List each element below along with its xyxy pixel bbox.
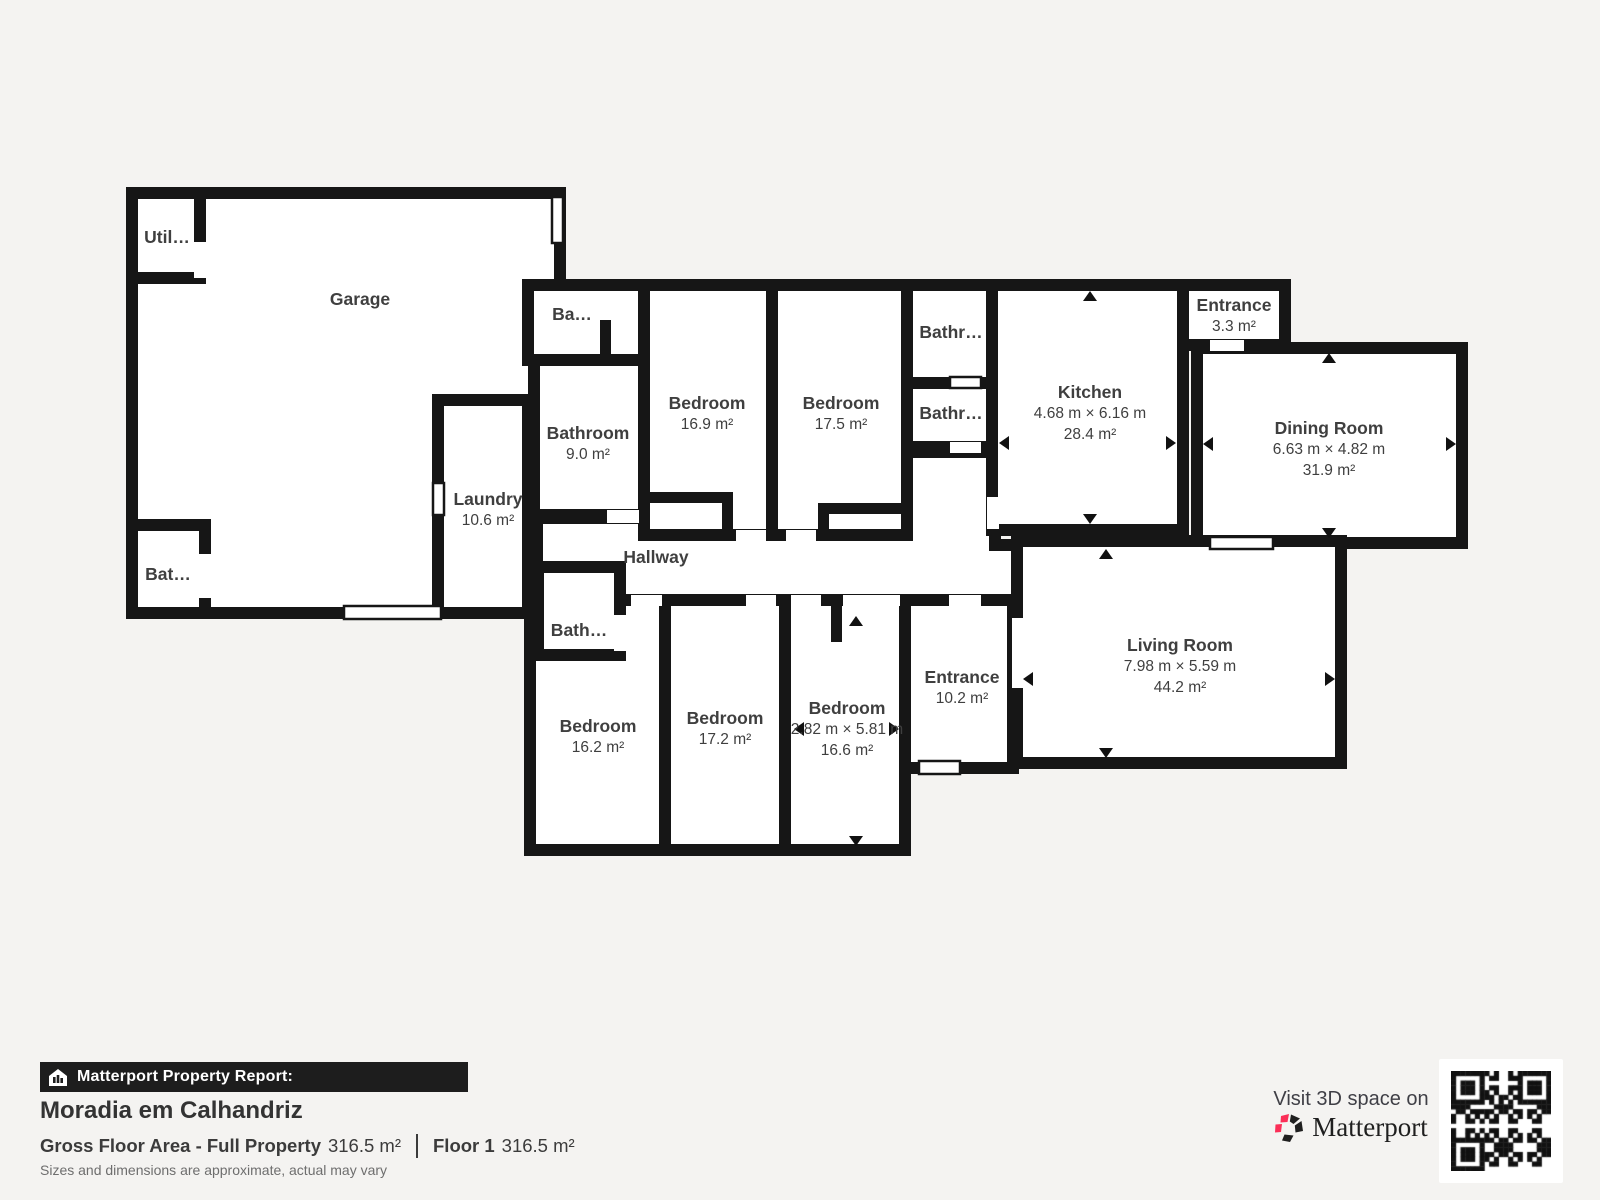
property-title: Moradia em Calhandriz	[40, 1097, 303, 1125]
matterport-wordmark: Matterport	[1312, 1112, 1427, 1143]
qr-code	[1451, 1071, 1551, 1171]
report-header-bar: Matterport Property Report:	[40, 1062, 468, 1092]
room-label-bathr2: Bathr…	[919, 402, 982, 424]
floor1-value: 316.5 m²	[502, 1135, 575, 1157]
matterport-floorplan-report: { "page": { "background": "#f4f3f1", "wa…	[0, 0, 1600, 1200]
room-label-hallway: Hallway	[623, 546, 688, 568]
room-label-utility: Util…	[144, 226, 190, 248]
floor-plan	[0, 0, 1600, 1200]
room-label-bedroom162: Bedroom16.2 m²	[560, 715, 637, 758]
report-bar-label: Matterport Property Report:	[77, 1068, 293, 1086]
gross-floor-area-label: Gross Floor Area - Full Property	[40, 1135, 321, 1157]
stats-divider	[416, 1134, 418, 1158]
room-label-kitchen: Kitchen4.68 m × 6.16 m28.4 m²	[1034, 381, 1146, 445]
room-label-entrance33: Entrance3.3 m²	[1197, 294, 1272, 337]
room-label-laundry: Laundry10.6 m²	[453, 488, 522, 531]
room-label-bedroom175: Bedroom17.5 m²	[803, 392, 880, 435]
matterport-pinwheel-icon	[1274, 1113, 1304, 1143]
room-bath-lower-floor	[538, 567, 620, 655]
room-label-bathroom9: Bathroom9.0 m²	[547, 422, 630, 465]
room-label-living: Living Room7.98 m × 5.59 m44.2 m²	[1124, 634, 1236, 698]
room-label-bedroom166: Bedroom2.82 m × 5.81 m16.6 m²	[791, 697, 903, 761]
room-label-dining: Dining Room6.63 m × 4.82 m31.9 m²	[1273, 417, 1385, 481]
room-label-bedroom172: Bedroom17.2 m²	[687, 707, 764, 750]
disclaimer-note: Sizes and dimensions are approximate, ac…	[40, 1162, 387, 1178]
room-label-bath-lower: Bath…	[551, 619, 607, 641]
room-label-garage: Garage	[330, 288, 390, 310]
room-label-bathr1: Bathr…	[919, 321, 982, 343]
visit-3d-label: Visit 3D space on	[1253, 1088, 1449, 1111]
floor1-label: Floor 1	[433, 1135, 495, 1157]
room-label-ba-top: Ba…	[552, 303, 592, 325]
room-label-bath-garage: Bat…	[145, 563, 191, 585]
matterport-logo: Matterport	[1253, 1112, 1449, 1143]
house-report-icon	[49, 1069, 67, 1086]
qr-card	[1439, 1059, 1563, 1183]
gross-floor-area-value: 316.5 m²	[328, 1135, 401, 1157]
report-stats: Gross Floor Area - Full Property 316.5 m…	[40, 1134, 575, 1158]
room-label-entrance102: Entrance10.2 m²	[925, 666, 1000, 709]
room-label-bedroom169: Bedroom16.9 m²	[669, 392, 746, 435]
